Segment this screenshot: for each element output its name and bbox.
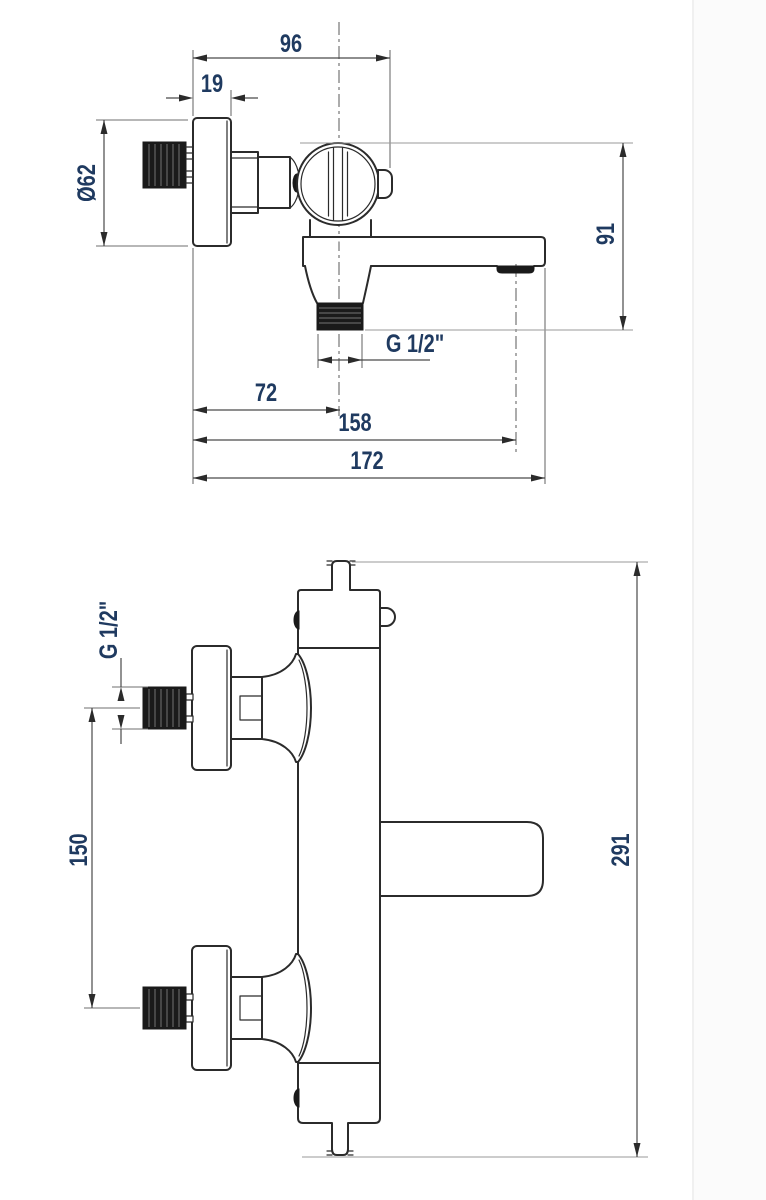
handle-knob	[297, 143, 392, 225]
dim-150: 150	[65, 708, 96, 1008]
eccentric-bell-upper	[262, 654, 311, 762]
dim-91-label: 91	[592, 223, 620, 245]
front-extension-ticks	[84, 687, 148, 1008]
spout-front	[380, 822, 543, 896]
escutcheon-lower	[192, 946, 231, 1070]
aerator-lip	[497, 266, 534, 273]
body-screw-lower	[294, 1089, 299, 1107]
dim-inlet-thread-label: G 1/2"	[95, 601, 123, 659]
handle-front-button	[378, 170, 392, 198]
stud-tab-lower-2	[186, 1016, 193, 1022]
outlet-thread	[317, 303, 363, 330]
inlet-upper	[143, 646, 311, 770]
dim-158-label: 158	[338, 409, 371, 437]
body-column	[294, 561, 395, 1155]
dim-outlet-thread: G 1/2"	[318, 330, 444, 364]
dim-150-label: 150	[65, 833, 93, 866]
dim-172: 172	[193, 447, 545, 482]
eccentric-bell-lower	[262, 954, 311, 1062]
front-view: G 1/2" 150 291	[65, 561, 648, 1157]
eccentric-collar-lower	[231, 977, 262, 1039]
side-inlet-thread	[143, 142, 194, 188]
dim-96-label: 96	[280, 30, 302, 58]
dim-72: 72	[193, 379, 340, 414]
side-escutcheon	[193, 118, 231, 246]
dim-91: 91	[592, 143, 627, 330]
side-view: 96 19 Ø62 G 1/2" 72	[73, 22, 633, 484]
dim-d62-label: Ø62	[73, 164, 101, 202]
dim-158: 158	[193, 409, 516, 444]
body-screw-upper	[294, 611, 299, 629]
spout-cone	[305, 266, 371, 303]
eccentric-collar-upper	[231, 677, 262, 739]
diverter-button	[380, 608, 395, 626]
escutcheon-upper	[192, 646, 231, 770]
dim-72-label: 72	[255, 379, 277, 407]
inlet-thread-upper	[143, 687, 186, 729]
technical-drawing-page: 96 19 Ø62 G 1/2" 72	[0, 0, 766, 1200]
mixer-dimension-drawing: 96 19 Ø62 G 1/2" 72	[0, 0, 766, 1200]
stud-tab-upper-2	[186, 716, 193, 722]
dim-291-label: 291	[607, 833, 635, 866]
dim-outlet-thread-label: G 1/2"	[386, 330, 444, 358]
page-margin-band	[693, 0, 766, 1200]
dim-291: 291	[607, 562, 641, 1157]
inlet-lower	[143, 946, 311, 1070]
stud-tab-upper-1	[186, 694, 193, 700]
dim-d62: Ø62	[73, 120, 108, 246]
side-valve-neck	[231, 152, 301, 213]
dim-19-label: 19	[201, 70, 223, 98]
dim-19: 19	[166, 70, 258, 102]
inlet-thread-lower	[143, 987, 186, 1029]
dim-inlet-thread: G 1/2"	[95, 601, 125, 744]
dim-172-label: 172	[350, 447, 383, 475]
dim-96: 96	[193, 30, 390, 62]
stud-tab-lower-1	[186, 994, 193, 1000]
